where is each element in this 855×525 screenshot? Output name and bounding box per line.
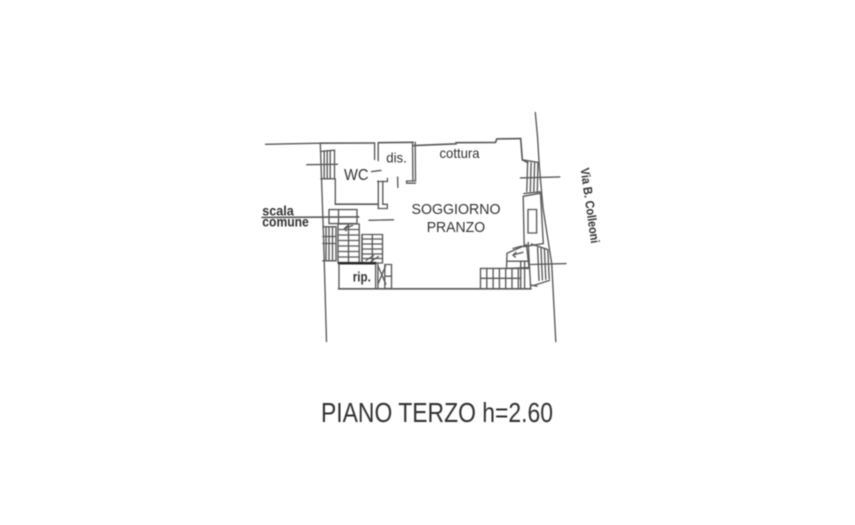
svg-text:WC: WC: [344, 167, 369, 184]
svg-text:SOGGIORNO: SOGGIORNO: [412, 201, 501, 218]
svg-text:Via B. Colleoni: Via B. Colleoni: [578, 167, 602, 244]
svg-text:dis.: dis.: [386, 151, 407, 166]
svg-text:comune: comune: [262, 214, 309, 229]
svg-text:PRANZO: PRANZO: [427, 219, 486, 236]
svg-text:rip.: rip.: [353, 270, 371, 285]
svg-text:PIANO TERZO h=2.60: PIANO TERZO h=2.60: [321, 397, 553, 428]
svg-text:cottura: cottura: [440, 145, 480, 161]
